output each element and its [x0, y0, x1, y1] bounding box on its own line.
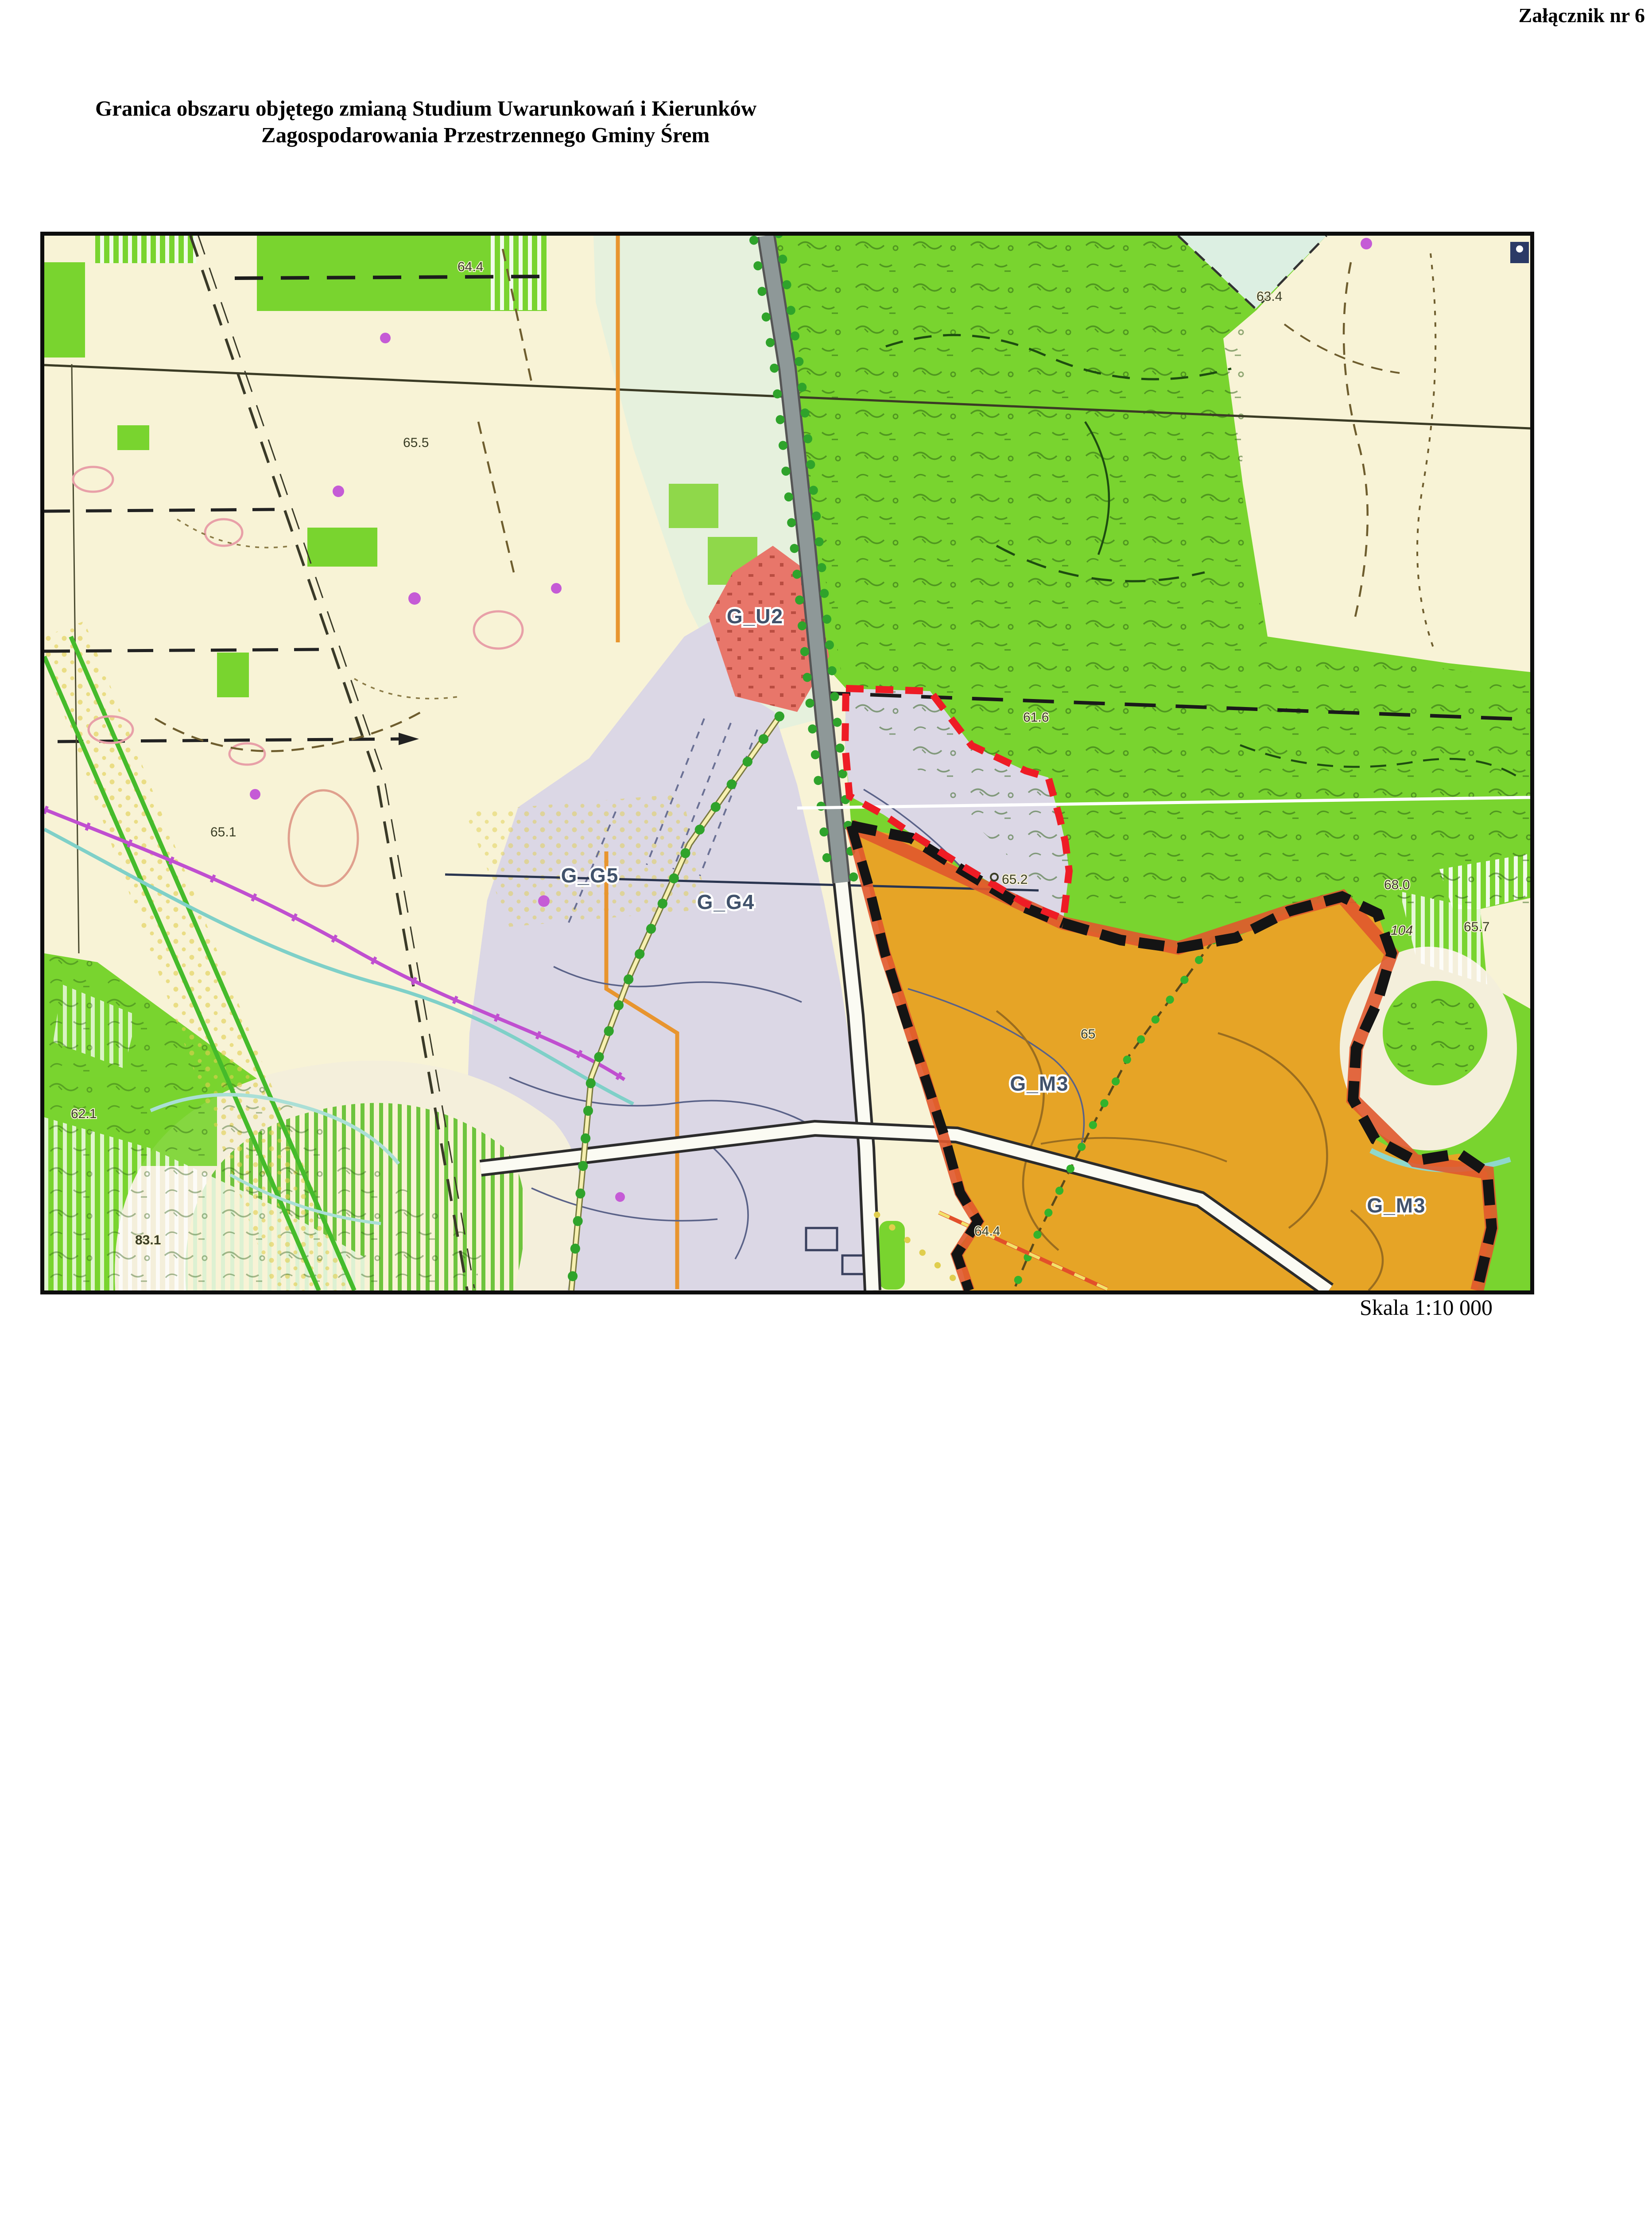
spot-height: 65.2	[1002, 872, 1028, 887]
spot-height: 68.0	[1384, 878, 1410, 892]
spot-height: 65	[1081, 1027, 1095, 1041]
zone-label-gm3-2: G_M3	[1367, 1194, 1426, 1217]
page-title-line2: Zagospodarowania Przestrzennego Gminy Śr…	[261, 122, 756, 148]
zone-label-gg5: G_G5	[561, 864, 619, 887]
zone-label-gg4: G_G4	[697, 890, 755, 913]
zone-label-gu2: G_U2	[727, 605, 783, 628]
planning-map: G_U2 G_G5 G_G4 G_M3 G_M3 64.4 63.4 65.5 …	[44, 236, 1530, 1290]
spot-height: 61.6	[1023, 710, 1049, 725]
spot-height: 64.4	[458, 260, 483, 274]
spot-height: 104	[1391, 923, 1413, 938]
spot-height: 64.4	[974, 1224, 1000, 1239]
spot-height: 83.1	[135, 1233, 161, 1247]
spot-height: 65.7	[1464, 920, 1489, 934]
zone-label-gm3-1: G_M3	[1010, 1072, 1069, 1095]
map-figure: G_U2 G_G5 G_G4 G_M3 G_M3 64.4 63.4 65.5 …	[40, 232, 1534, 1294]
spot-height: 62.1	[71, 1107, 97, 1121]
spot-height: 65.1	[210, 825, 236, 839]
attachment-label: Załącznik nr 6	[1519, 4, 1645, 27]
spot-height: 63.4	[1256, 289, 1282, 304]
page-title-line1: Granica obszaru objętego zmianą Studium …	[95, 96, 756, 120]
scale-label: Skala 1:10 000	[1360, 1294, 1493, 1320]
page-title: Granica obszaru objętego zmianą Studium …	[95, 95, 756, 148]
spot-height: 65.5	[403, 435, 429, 450]
